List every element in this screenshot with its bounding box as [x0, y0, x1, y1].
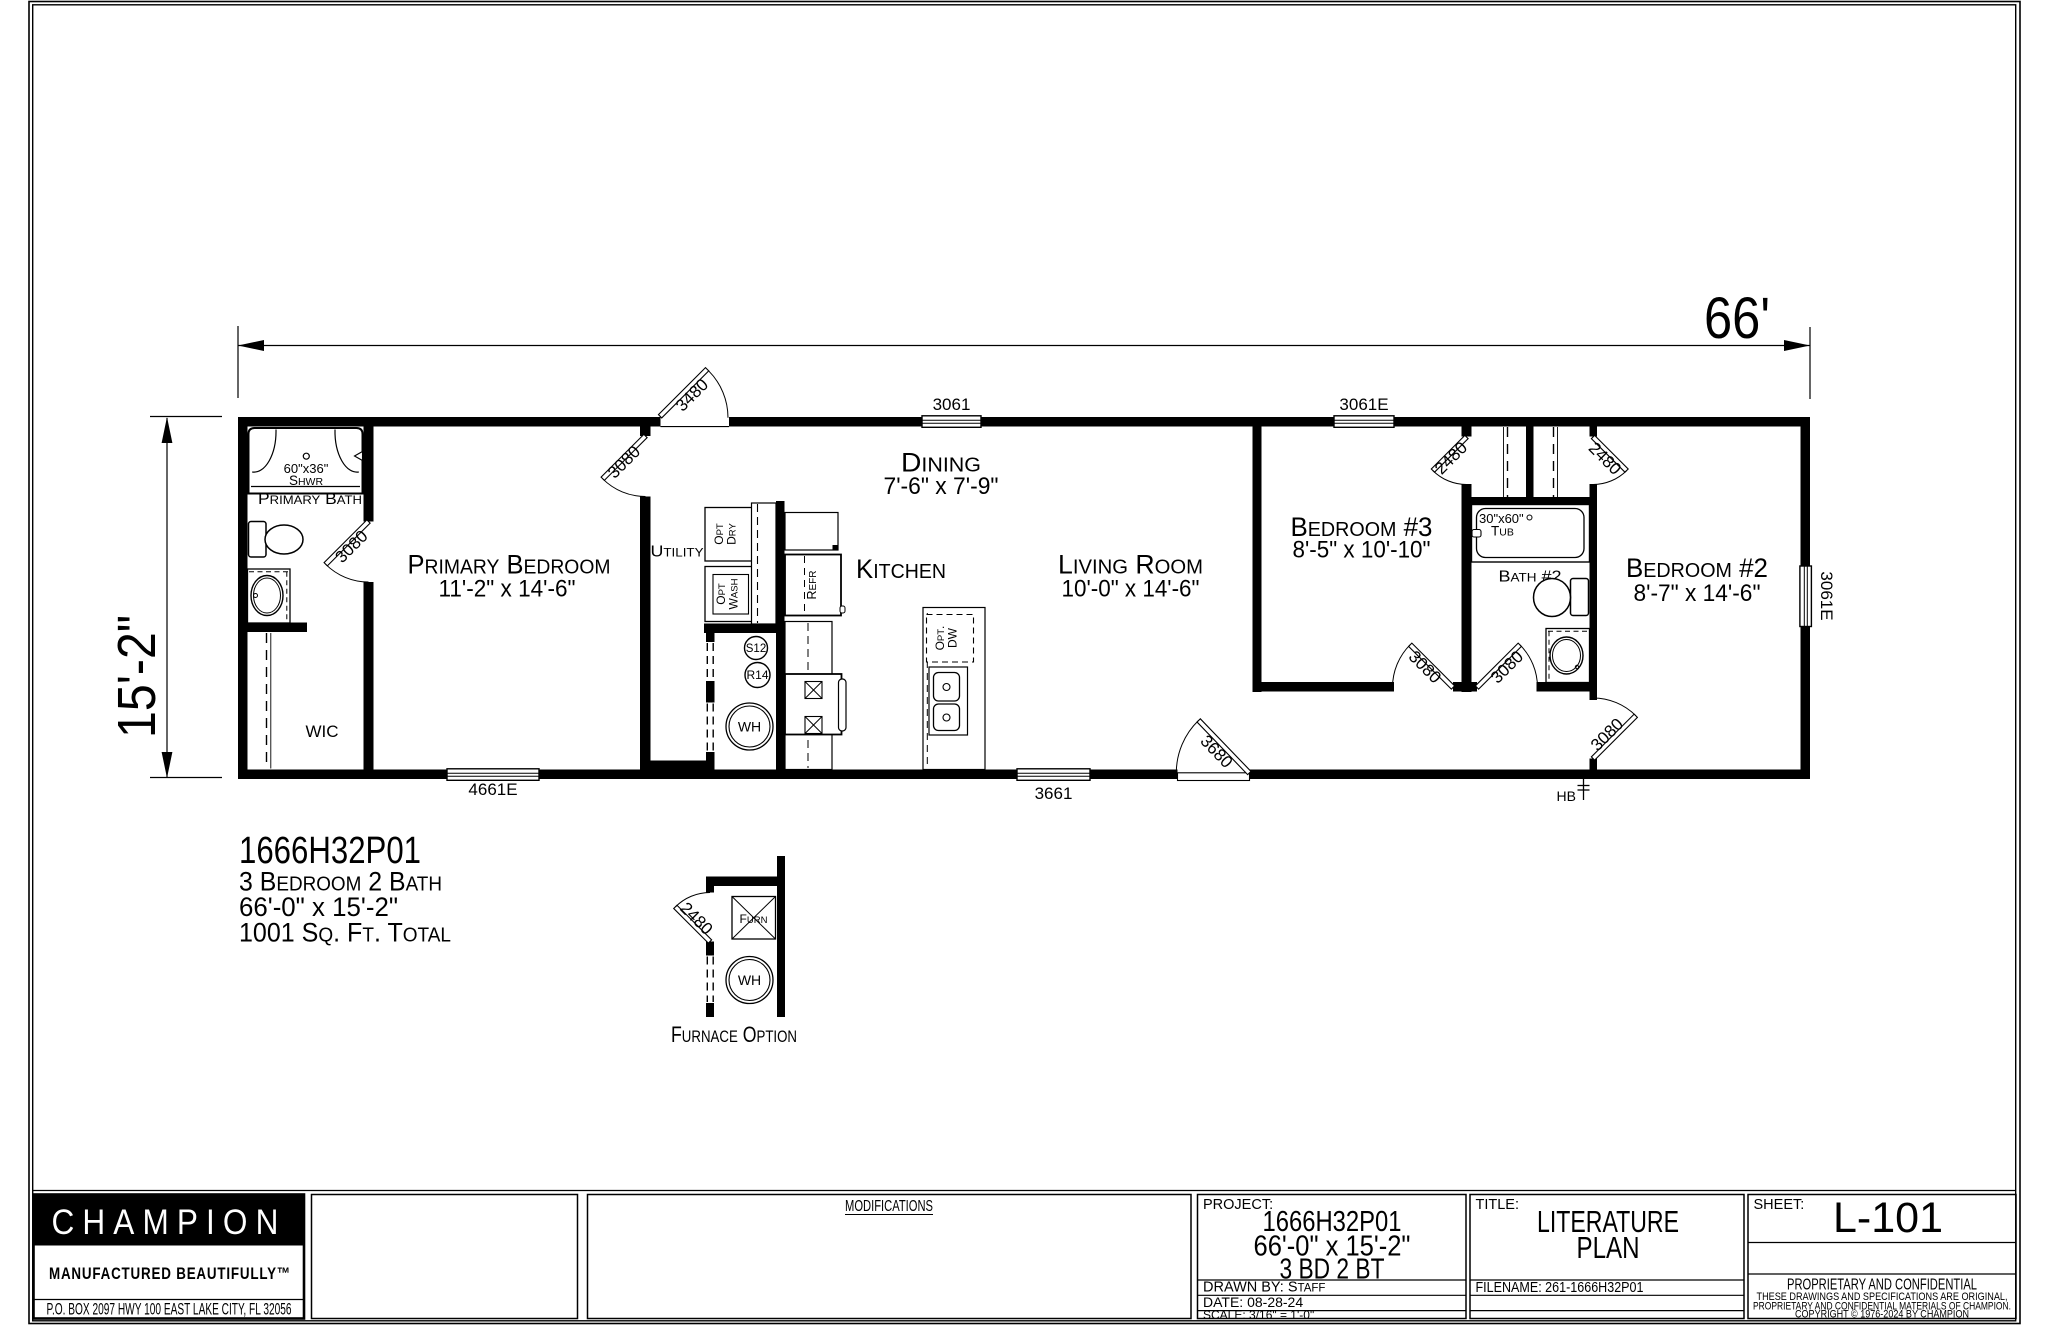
- svg-text:7'-6" x 7'-9": 7'-6" x 7'-9": [884, 473, 999, 500]
- svg-text:UTILITY: UTILITY: [651, 544, 704, 561]
- svg-text:HB: HB: [1557, 788, 1576, 804]
- svg-text:R14: R14: [746, 668, 768, 682]
- svg-text:WIC: WIC: [305, 722, 338, 741]
- svg-text:PRIMARY BATH: PRIMARY BATH: [258, 491, 362, 508]
- svg-text:TUB: TUB: [1491, 524, 1514, 539]
- svg-text:WASH: WASH: [727, 578, 741, 609]
- svg-text:4661E: 4661E: [468, 780, 517, 799]
- svg-text:3061: 3061: [933, 395, 971, 414]
- svg-text:DRY: DRY: [725, 522, 739, 544]
- svg-text:3061E: 3061E: [1339, 395, 1388, 414]
- svg-text:10'-0" x 14'-6": 10'-0" x 14'-6": [1062, 576, 1200, 603]
- svg-text:MANUFACTURED BEAUTIFULLY™: MANUFACTURED BEAUTIFULLY™: [49, 1265, 291, 1283]
- svg-text:DW: DW: [946, 627, 960, 648]
- svg-text:FILENAME: 261-1666H32P01: FILENAME: 261-1666H32P01: [1476, 1280, 1644, 1296]
- svg-text:11'-2" x 14'-6": 11'-2" x 14'-6": [439, 576, 576, 603]
- svg-text:3061E: 3061E: [1817, 571, 1836, 620]
- svg-text:66': 66': [1704, 286, 1770, 351]
- svg-text:PLAN: PLAN: [1577, 1230, 1640, 1265]
- svg-text:COPYRIGHT © 1976-2024 BY CHAMP: COPYRIGHT © 1976-2024 BY CHAMPION: [1795, 1309, 1969, 1321]
- svg-text:WH: WH: [738, 972, 761, 988]
- svg-text:L-101: L-101: [1833, 1194, 1943, 1242]
- svg-text:SHWR: SHWR: [289, 473, 324, 488]
- svg-text:CHAMPION: CHAMPION: [52, 1203, 287, 1242]
- svg-text:8'-5" x 10'-10": 8'-5" x 10'-10": [1293, 537, 1431, 564]
- svg-text:WH: WH: [738, 719, 761, 735]
- svg-text:S12: S12: [746, 643, 766, 655]
- svg-text:FURN: FURN: [740, 912, 768, 926]
- svg-text:MODIFICATIONS: MODIFICATIONS: [845, 1198, 933, 1215]
- svg-text:REFR: REFR: [805, 570, 819, 599]
- svg-text:8'-7" x 14'-6": 8'-7" x 14'-6": [1634, 580, 1761, 607]
- svg-text:SCALE: 3/16" = 1'-0": SCALE: 3/16" = 1'-0": [1203, 1308, 1314, 1322]
- svg-text:15'-2": 15'-2": [107, 615, 167, 738]
- svg-text:TITLE:: TITLE:: [1476, 1197, 1520, 1213]
- svg-text:SHEET:: SHEET:: [1754, 1197, 1805, 1213]
- svg-text:3661: 3661: [1035, 784, 1073, 803]
- svg-text:30"x60": 30"x60": [1479, 511, 1524, 526]
- svg-text:P.O. BOX 2097 HWY 100 EAST LAK: P.O. BOX 2097 HWY 100 EAST LAKE CITY, FL…: [47, 1300, 292, 1319]
